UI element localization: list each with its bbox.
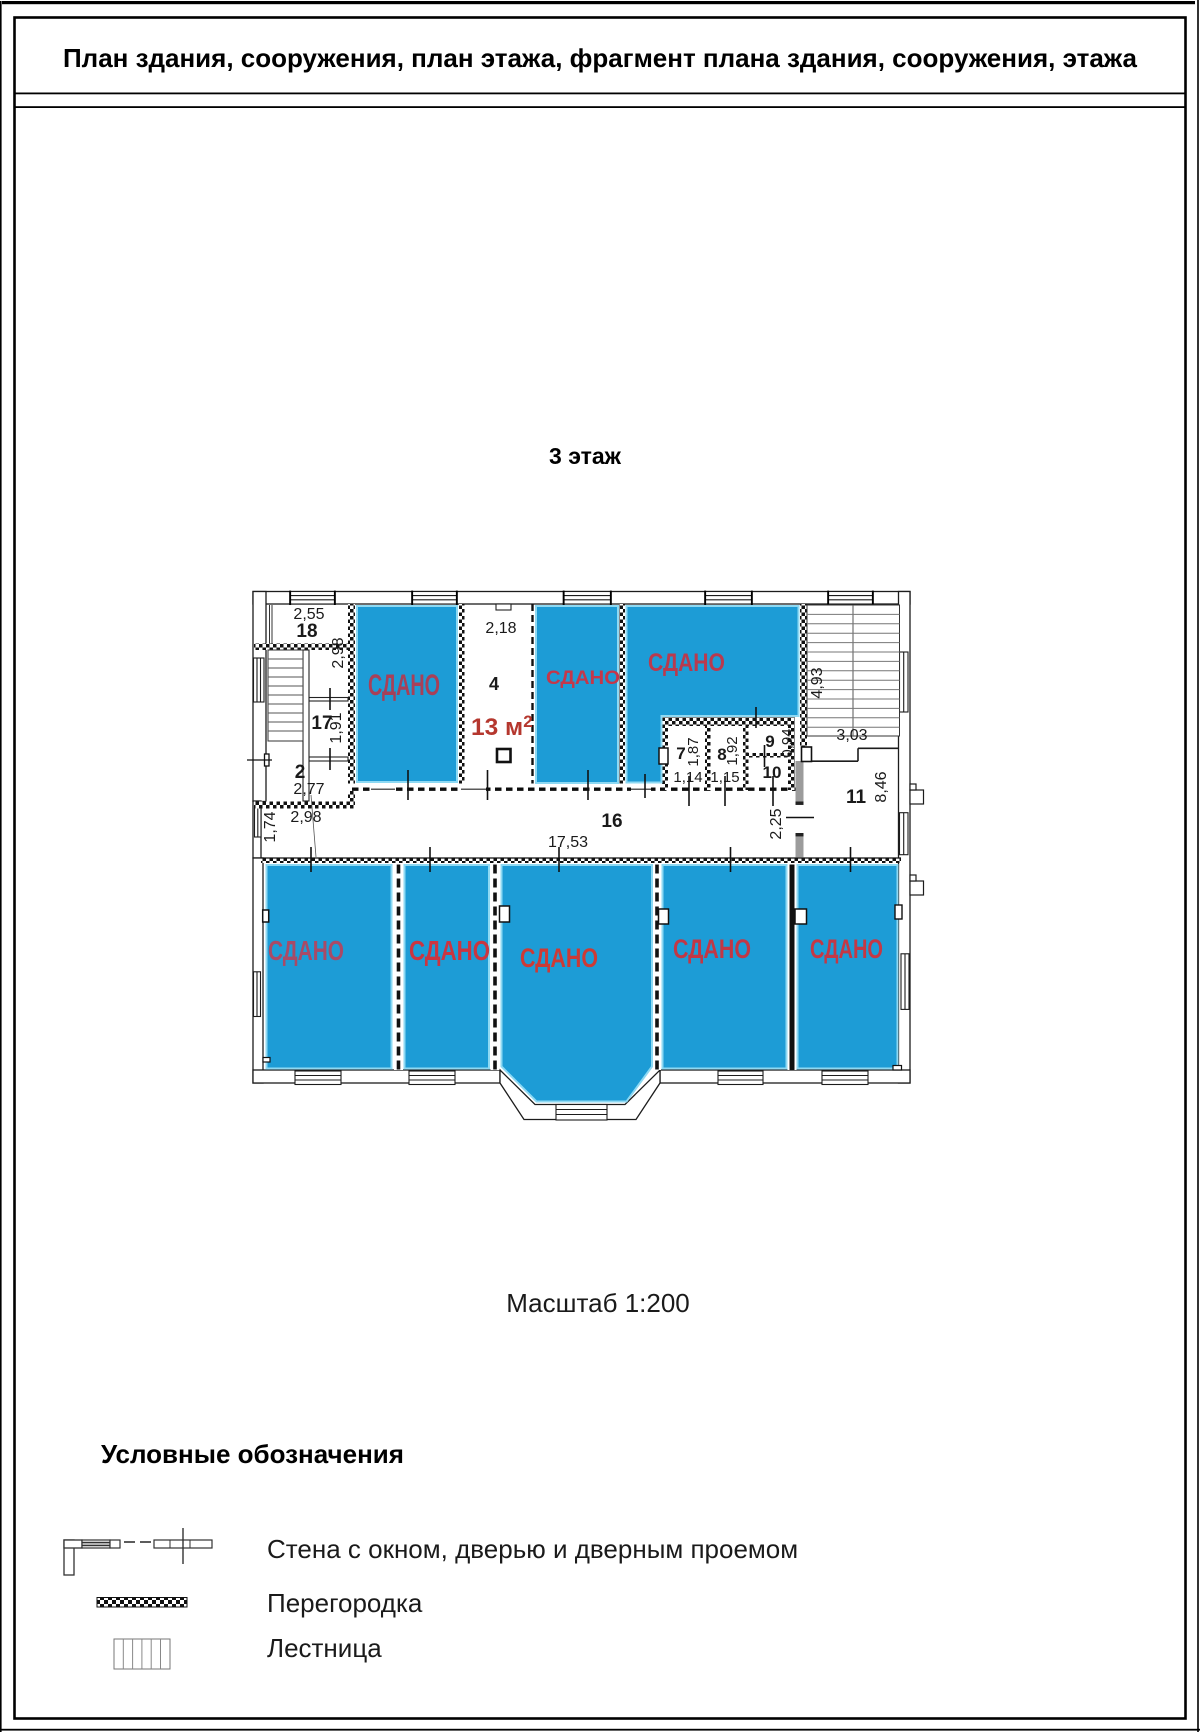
svg-text:СДАНО: СДАНО (673, 934, 751, 964)
svg-text:0,94: 0,94 (779, 728, 796, 757)
svg-text:1,15: 1,15 (710, 769, 739, 786)
svg-text:4,93: 4,93 (809, 667, 826, 698)
svg-text:2,25: 2,25 (768, 808, 785, 839)
svg-text:10: 10 (763, 763, 782, 782)
svg-text:3,03: 3,03 (836, 727, 867, 744)
svg-text:2,98: 2,98 (330, 637, 347, 668)
svg-text:1,92: 1,92 (724, 736, 741, 765)
svg-text:18: 18 (296, 621, 317, 642)
svg-text:План здания, сооружения, план: План здания, сооружения, план этажа, фра… (63, 43, 1138, 73)
svg-text:СДАНО: СДАНО (546, 667, 620, 689)
svg-text:1,91: 1,91 (328, 712, 345, 743)
svg-text:Перегородка: Перегородка (267, 1588, 423, 1618)
svg-text:2,18: 2,18 (485, 620, 516, 637)
svg-text:2,98: 2,98 (290, 809, 321, 826)
svg-text:1,14: 1,14 (673, 769, 702, 786)
svg-text:Условные обозначения: Условные обозначения (101, 1439, 404, 1469)
svg-text:Масштаб 1:200: Масштаб 1:200 (506, 1288, 690, 1318)
svg-text:Стена с окном, дверью и дверны: Стена с окном, дверью и дверным проемом (267, 1534, 798, 1564)
svg-text:1,74: 1,74 (262, 811, 279, 842)
svg-text:8,46: 8,46 (873, 771, 890, 802)
svg-text:СДАНО: СДАНО (409, 935, 490, 966)
svg-text:Лестница: Лестница (267, 1633, 382, 1663)
svg-text:3 этаж: 3 этаж (549, 443, 622, 469)
svg-text:СДАНО: СДАНО (648, 649, 725, 677)
svg-text:11: 11 (846, 787, 867, 808)
svg-text:9: 9 (765, 732, 774, 751)
svg-text:СДАНО: СДАНО (268, 935, 344, 966)
svg-text:2: 2 (295, 762, 306, 783)
svg-text:СДАНО: СДАНО (520, 943, 598, 973)
svg-text:16: 16 (601, 811, 622, 832)
svg-text:17,53: 17,53 (548, 834, 588, 851)
svg-text:СДАНО: СДАНО (368, 669, 440, 702)
svg-text:4: 4 (489, 674, 499, 694)
svg-text:2,77: 2,77 (293, 781, 324, 798)
svg-text:СДАНО: СДАНО (810, 934, 883, 964)
svg-text:1,87: 1,87 (685, 737, 702, 766)
